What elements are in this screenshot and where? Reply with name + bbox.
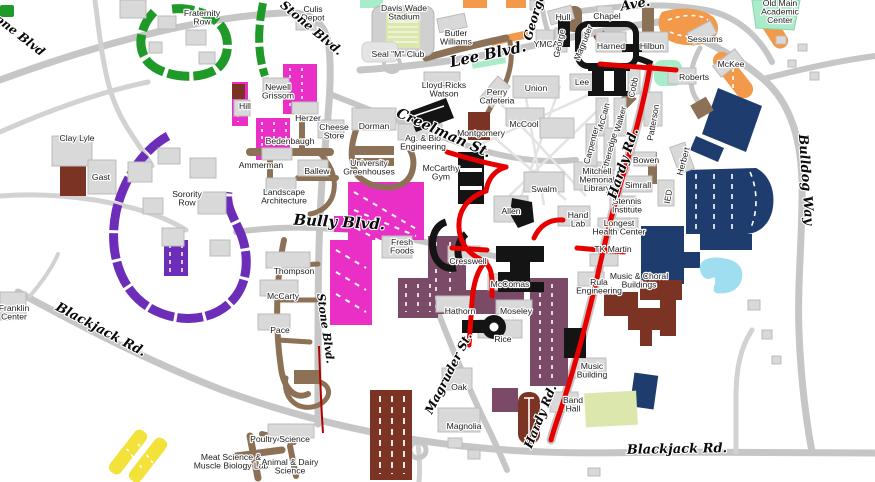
building-label: Chapel (593, 11, 620, 21)
building-label: Swalm (531, 184, 557, 194)
street-label: Bulldog Way (795, 133, 816, 227)
building-label: Oak (451, 382, 467, 392)
building-label: McCarty (267, 291, 300, 301)
building-label: Pace (270, 325, 290, 335)
building-label: Carpenter (581, 125, 601, 165)
building-label: Meat Science &Muscle Biology Lab (194, 452, 269, 471)
building-label: Allen (501, 206, 520, 216)
building-label: Hilbun (640, 41, 665, 51)
pond (700, 258, 743, 294)
ponds (700, 258, 743, 294)
building-label: Hathorn (445, 306, 476, 316)
building-label: McCarthyGym (423, 163, 460, 182)
building-label: Seal "M" Club (372, 49, 425, 59)
building-label: Poultry Science (250, 434, 310, 444)
street-label: Blackjack Rd. (626, 441, 728, 458)
building-label: Hill (239, 101, 251, 111)
building-label: Ballew (304, 166, 330, 176)
building-label: Harned (597, 41, 625, 51)
building-label: Lee (575, 77, 590, 87)
building-label: LandscapeArchitecture (261, 187, 307, 206)
band-practice-field (584, 391, 638, 428)
building-label: NewellGrissom (262, 82, 294, 101)
building-label: McKee (718, 59, 745, 69)
building-label: Sessums (687, 34, 722, 44)
building-label: Cresswell (449, 256, 486, 266)
building-label: Lloyd-RicksWatson (422, 80, 466, 99)
building-label: MusicBuilding (577, 361, 608, 380)
building-label: McComas (491, 279, 530, 289)
street-label: Blackjack Rd. (52, 299, 148, 360)
building-label: Roberts (679, 72, 709, 82)
building-label: Bedenbaugh (266, 136, 315, 146)
building-label: Herzer (295, 113, 321, 123)
building-label: Simrall (625, 180, 651, 190)
building-label: Hull (556, 12, 571, 22)
building-label: Clay Lyle (59, 133, 94, 143)
building-label: Ammerman (239, 160, 284, 170)
building-label: ButlerWilliams (440, 28, 472, 47)
building-label: Bowen (633, 155, 659, 165)
building-label: Moseley (500, 306, 533, 316)
building-label: BandHall (563, 395, 583, 414)
building-label: CheeseStore (319, 122, 349, 141)
building-label: UniversityGreenhouses (343, 158, 395, 177)
building-label: Rice (494, 334, 511, 344)
building-label: Dorman (359, 121, 390, 131)
campus-map-svg[interactable]: FraternityRowCulisDepotDavis WadeStadium… (0, 0, 875, 482)
building-label: McCool (509, 119, 538, 129)
parking-lot-yellow (106, 427, 169, 482)
campus-map[interactable]: FraternityRowCulisDepotDavis WadeStadium… (0, 0, 875, 482)
building-label: Thompson (274, 266, 315, 276)
building-label: TK Martin (594, 244, 631, 254)
building-label: Gast (92, 172, 111, 182)
building-label: FranklinCenter (0, 303, 29, 322)
building-label: FreshFoods (390, 237, 414, 256)
building-label: Magnolia (447, 421, 482, 431)
building-label: PerryCafeteria (480, 87, 515, 106)
building-label: Union (525, 83, 548, 93)
building-label: Animal & DairyScience (262, 457, 320, 476)
